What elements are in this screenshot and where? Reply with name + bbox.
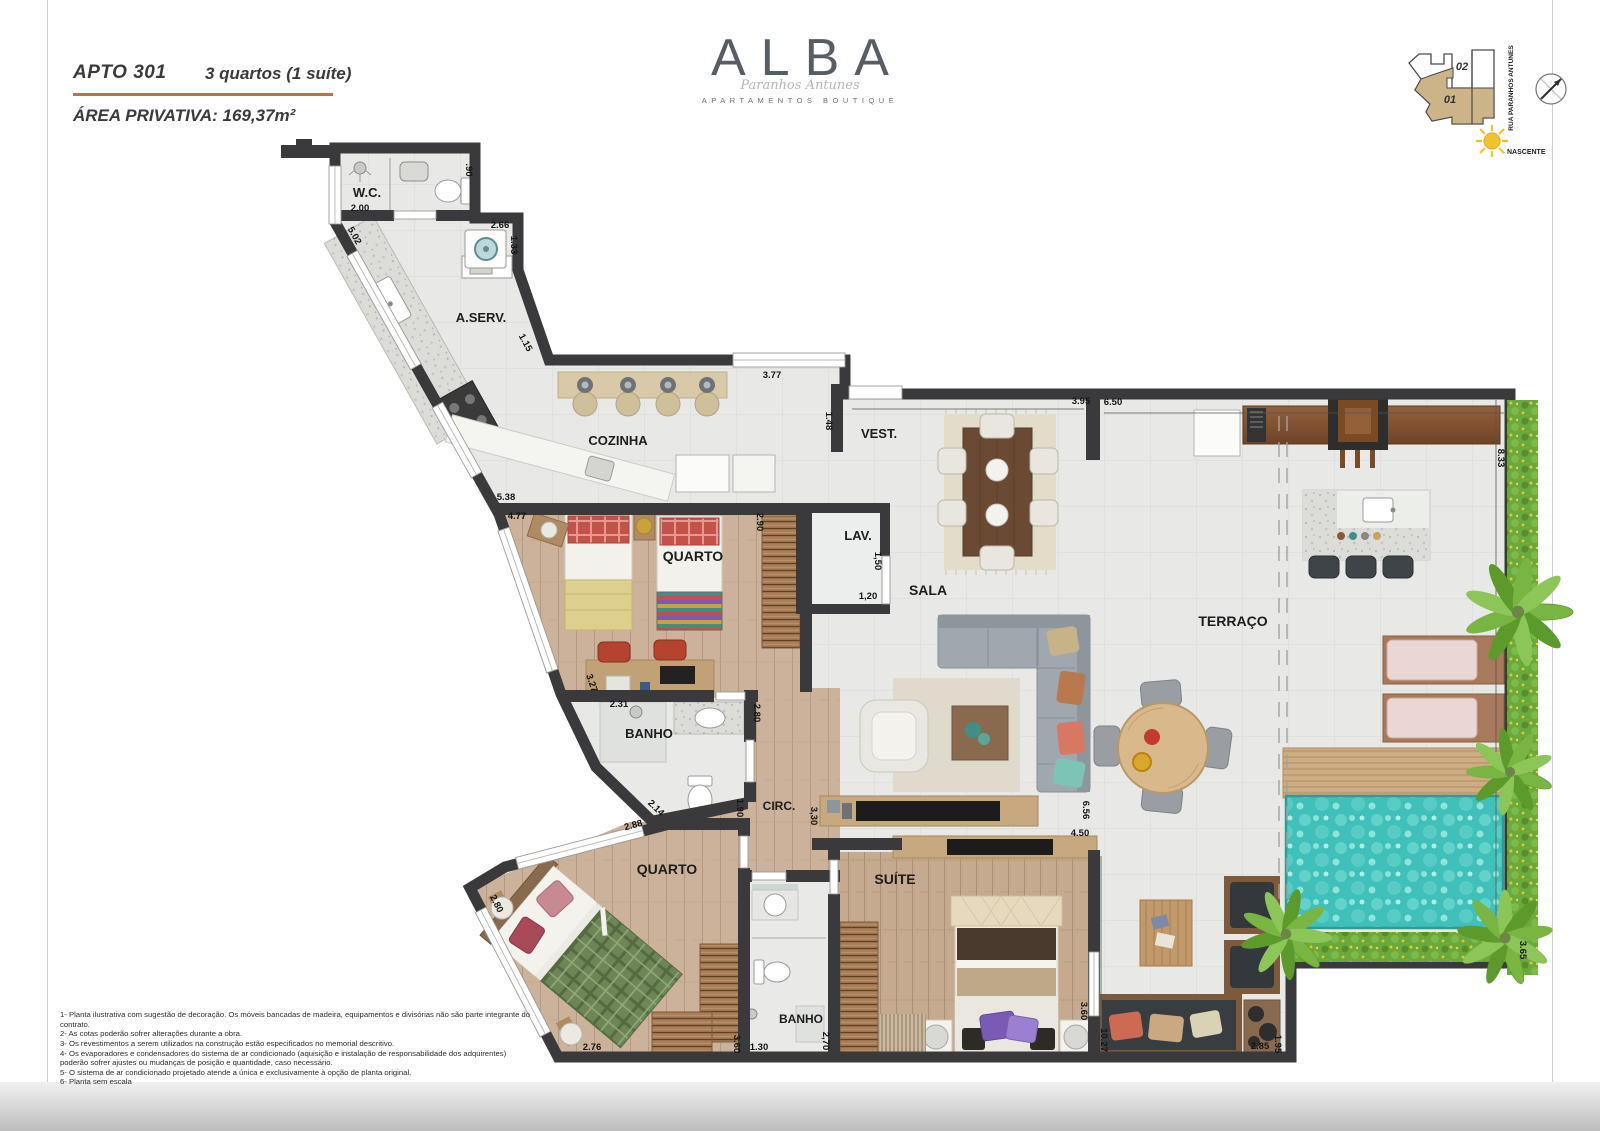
- room-label-quarto1: QUARTO: [663, 548, 724, 564]
- nightstand-lamp: [560, 1023, 582, 1045]
- note-line: 6- Planta sem escala: [60, 1077, 532, 1087]
- dining-area: [938, 409, 1058, 575]
- washing-machine: [465, 230, 506, 268]
- decor-bowl: [636, 518, 652, 534]
- room-label-circ: CIRC.: [763, 799, 796, 813]
- dim-label: 4.50: [1071, 828, 1090, 839]
- single-bed-a: [565, 514, 632, 630]
- note-line: 4- Os evaporadores e condensadores do si…: [60, 1049, 532, 1068]
- single-bed-b: [657, 516, 722, 630]
- door-banho2: [752, 872, 786, 880]
- entrance-door: [849, 386, 902, 399]
- unit-01-label: 01: [1444, 94, 1456, 106]
- dim-label: 3.60: [1078, 1002, 1089, 1021]
- dim-label: 3.77: [763, 370, 782, 381]
- outdoor-table: [1140, 900, 1192, 966]
- fridge: [676, 455, 729, 492]
- room-label-terraco: TERRAÇO: [1198, 613, 1267, 629]
- island-counter: [1303, 490, 1430, 578]
- vanity-sink: [695, 708, 725, 728]
- floorplan-drawing: 02 01 RUA PARANHOS ANTUNES NASCENTE W.C.…: [0, 0, 1600, 1131]
- room-label-cozinha: COZINHA: [588, 433, 648, 448]
- dim-label: 1.30: [750, 1042, 769, 1053]
- dim-label: 2,70: [820, 1032, 831, 1051]
- door-wc: [394, 211, 436, 219]
- compass-icon: [1536, 74, 1566, 104]
- wardrobe-quarto2-b: [652, 1012, 712, 1052]
- dim-label: 2.00: [351, 203, 370, 214]
- dim-label: 1.33: [508, 236, 519, 255]
- king-bed: [951, 896, 1062, 1054]
- toilet: [754, 960, 790, 984]
- dim-label: 6.56: [1080, 801, 1091, 820]
- dim-label: 3,30: [808, 807, 819, 826]
- floorplan-sheet: APTO 301 3 quartos (1 suíte) ÁREA PRIVAT…: [0, 0, 1600, 1131]
- dim-label: 3.95: [1072, 396, 1091, 407]
- suite-rug: [880, 1014, 926, 1054]
- sun-icon: [1476, 125, 1508, 157]
- room-label-lav: LAV.: [844, 528, 871, 543]
- note-line: 3- Os revestimentos a serem utilizados n…: [60, 1039, 532, 1049]
- lamp: [1064, 1025, 1088, 1049]
- unit-02-label: 02: [1456, 61, 1468, 73]
- outdoor-fridge: [1194, 410, 1240, 456]
- dim-label: 1,50: [872, 552, 883, 571]
- room-label-suite: SUÍTE: [874, 871, 915, 887]
- dim-label: 2.76: [583, 1042, 602, 1053]
- door-banho1: [746, 740, 754, 782]
- mirror: [752, 884, 798, 890]
- wc-toilet: [435, 178, 473, 204]
- note-line: 1- Planta ilustrativa com sugestão de de…: [60, 1010, 532, 1029]
- dim-label: 8.33: [1495, 449, 1506, 468]
- dim-label: 1,20: [859, 591, 878, 602]
- kitchen-cabinet: [733, 455, 775, 492]
- wardrobe-suite: [840, 922, 878, 1054]
- dim-label: 10.27: [1098, 1028, 1109, 1052]
- shower-head-icon: [630, 706, 642, 718]
- armchair: [860, 700, 928, 772]
- dim-label: 6.50: [1104, 397, 1123, 408]
- legal-notes: 1- Planta ilustrativa com sugestão de de…: [60, 1010, 532, 1087]
- street-label: RUA PARANHOS ANTUNES: [1508, 45, 1515, 131]
- shower-head-icon: [354, 162, 366, 174]
- note-line: 2- As cotas poderão sofrer alterações du…: [60, 1029, 532, 1039]
- lamp: [924, 1025, 948, 1049]
- dim-label: 3.65: [1517, 941, 1528, 960]
- door-quarto2: [740, 836, 748, 868]
- site-map: 02 01 RUA PARANHOS ANTUNES NASCENTE: [1409, 45, 1566, 157]
- wardrobe-quarto1: [762, 516, 800, 648]
- dim-label: 1.95: [1272, 1035, 1283, 1054]
- dim-label: 4.77: [508, 511, 527, 522]
- place-setting: [986, 459, 1008, 481]
- dim-label: 1.48: [823, 412, 834, 431]
- dim-label: 2.80: [751, 704, 762, 723]
- coffee-table: [952, 706, 1008, 760]
- note-line: 5- O sistema de ar condicionado projetad…: [60, 1068, 532, 1078]
- dim-label: 1.90: [734, 799, 745, 818]
- round-basin: [764, 894, 786, 916]
- room-label-banho1: BANHO: [625, 726, 673, 741]
- dim-label: 2.66: [491, 220, 510, 231]
- dim-label: .90: [463, 163, 474, 176]
- tv-console-suite: [893, 836, 1097, 858]
- dim-label: 5.38: [497, 492, 516, 503]
- decor-plate: [541, 522, 557, 538]
- door-quarto1: [716, 692, 745, 700]
- dim-label: 3.60: [731, 1035, 742, 1054]
- dim-label: 2.85: [1251, 1041, 1270, 1052]
- room-label-aserv: A.SERV.: [456, 310, 507, 325]
- door-suite: [830, 860, 838, 894]
- tv-console-sala: [820, 796, 1038, 826]
- dim-label: 2.90: [754, 513, 765, 532]
- place-setting: [986, 504, 1008, 526]
- sun-orientation-label: NASCENTE: [1507, 149, 1546, 156]
- hedge-right: [1507, 400, 1538, 975]
- room-label-sala: SALA: [909, 582, 947, 598]
- room-label-banho2: BANHO: [779, 1012, 823, 1026]
- room-label-wc: W.C.: [353, 185, 381, 200]
- wc-sink: [400, 162, 428, 181]
- room-label-vest: VEST.: [861, 426, 897, 441]
- room-label-quarto2: QUARTO: [637, 861, 698, 877]
- dim-label: 2.31: [610, 699, 629, 710]
